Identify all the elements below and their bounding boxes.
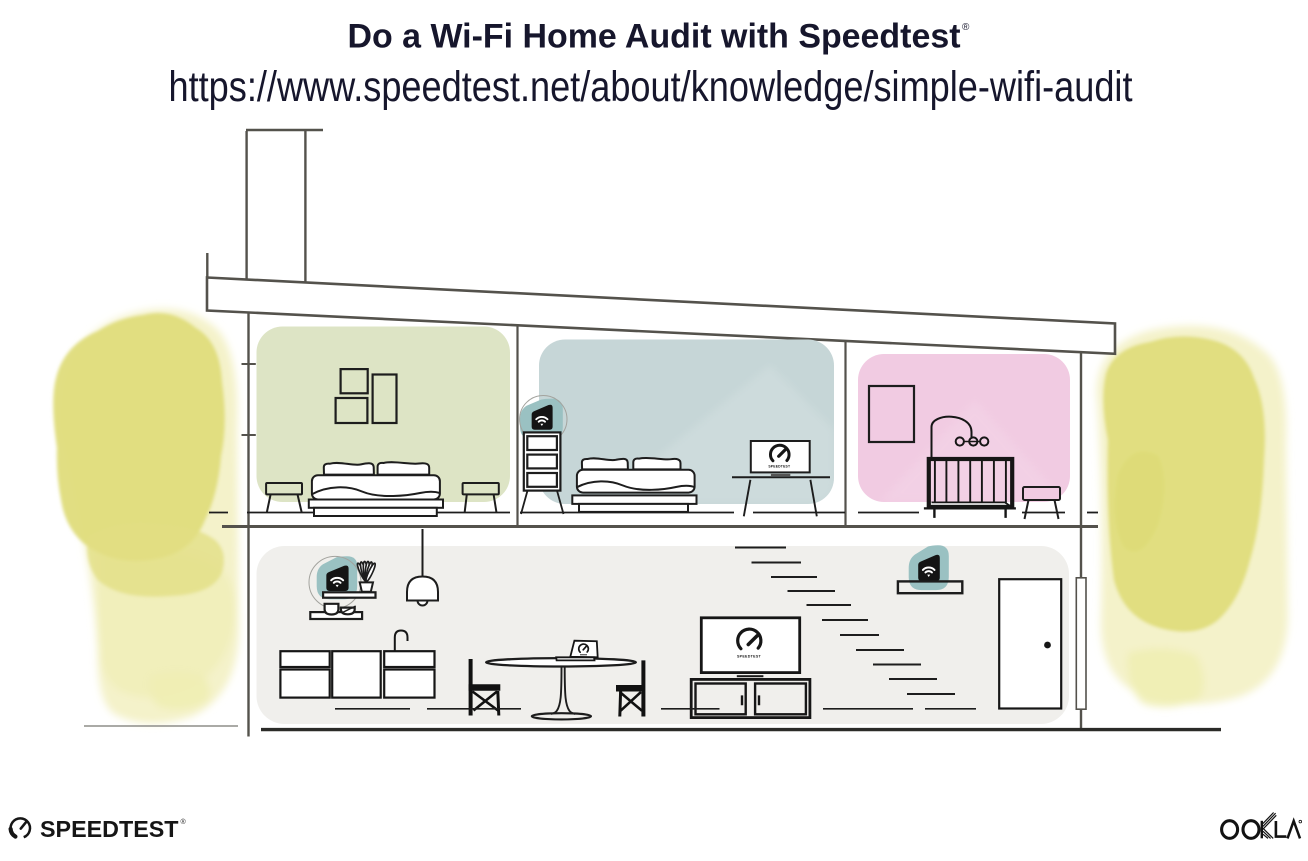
svg-text:Do a Wi-Fi Home Audit with Spe: Do a Wi-Fi Home Audit with Speedtest — [348, 18, 961, 56]
svg-text:®: ® — [181, 818, 187, 826]
svg-text:SPEEDTEST: SPEEDTEST — [40, 816, 179, 842]
svg-text:https://www.speedtest.net/abou: https://www.speedtest.net/about/knowledg… — [169, 63, 1133, 111]
svg-text:SPEEDTEST: SPEEDTEST — [768, 464, 791, 468]
svg-text:SPEEDTEST: SPEEDTEST — [737, 655, 762, 659]
svg-text:®: ® — [962, 22, 970, 33]
